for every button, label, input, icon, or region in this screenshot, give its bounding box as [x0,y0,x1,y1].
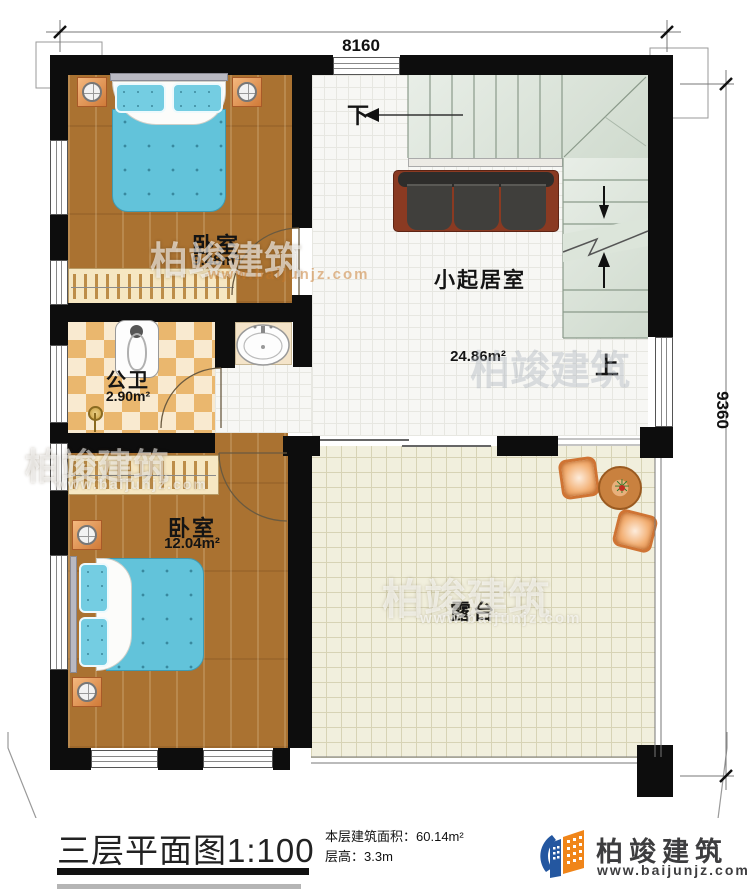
floor-area-label: 本层建筑面积： [325,829,416,844]
window [655,337,673,427]
bed-headboard [110,73,228,81]
wall-bathroom-east [215,322,235,368]
bed-bedroom1 [110,73,228,212]
stair-half-wall [408,158,563,167]
terrace-chair [557,456,600,501]
pillow [79,617,109,667]
floor-drain [88,406,103,421]
window [50,345,68,423]
terrace-label: 露台 [428,596,518,626]
wall-right [648,55,673,337]
stairs-down-label: 下 [344,98,374,130]
plant-flower [619,485,625,491]
floor-height-label: 层高： [325,849,364,864]
window [50,443,68,491]
floor-plan-page: ✳ [0,0,750,892]
pillow [79,563,109,613]
wall-bottom [50,748,91,770]
floor-height-value: 3.3m [364,849,393,864]
window [50,140,68,215]
lamp-icon [77,525,97,545]
title-underline-gray [57,884,301,889]
title-block: 三层平面图1:100 本层建筑面积：60.14m² 层高：3.3m 柏竣建筑 [0,818,750,892]
bedroom1-area: 9.48m² [166,252,266,269]
sofa [393,170,559,232]
bathroom-area: 2.90m² [78,388,178,404]
sink-counter [235,322,292,365]
wall-top-left [60,55,333,75]
wall-bedroom2-east [288,436,312,748]
plan-scale: 1:100 [227,832,315,869]
wall-bottom [158,748,203,770]
dimension-width: 8160 [330,36,392,56]
sofa-cushion [407,184,452,230]
stair-lower-flight [563,158,648,338]
plan-title: 三层平面图1:100 [57,824,315,872]
bed-headboard [70,556,77,673]
lamp-icon [237,82,257,102]
window [50,260,68,305]
wardrobe-rail [71,287,234,288]
wall-terrace-ne-pier [640,438,673,458]
wall-hall-south [50,433,215,453]
pillow [172,83,223,113]
wall-terrace-se-pier [637,745,673,797]
wardrobe-rail [71,475,216,476]
wall-bathroom-north [50,303,312,322]
brand-website: www.baijunjz.com [597,862,750,878]
hallway-floor [215,365,312,433]
dimension-height: 9360 [712,378,732,442]
title-underline [57,868,309,875]
wall-bedroom1-east [292,75,312,228]
lamp-icon [77,682,97,702]
stair-upper-flight [408,75,648,158]
wall-left [50,55,68,140]
brand-logo-icon [536,826,590,882]
wall-living-south [497,436,558,456]
window [203,750,273,768]
wall-sink-east [293,322,312,367]
lamp-icon [82,82,102,102]
nightstand [72,677,102,707]
sofa-cushion [454,184,499,230]
wardrobe-bedroom1 [68,268,237,305]
nightstand [77,77,107,107]
living-room-label: 小起居室 [390,264,570,294]
nightstand [232,77,262,107]
window [50,555,68,670]
floor-height-line: 层高：3.3m [325,846,393,865]
stairs-up-label: 上 [592,346,624,381]
nightstand [72,520,102,550]
floor-area-value: 60.14m² [416,829,464,844]
wall-top-right [400,55,673,75]
terrace-table: ✳ [598,466,642,510]
wardrobe-bedroom2 [68,455,219,495]
pillow [115,83,166,113]
window [91,750,158,768]
wall-left [50,215,68,260]
sofa-cushion [501,184,546,230]
living-room-area: 24.86m² [398,348,558,365]
wall-left [50,491,68,555]
window [333,57,400,75]
plan-title-text: 三层平面图 [57,832,227,869]
bedroom2-area: 12.04m² [132,535,252,552]
floor-area-line: 本层建筑面积：60.14m² [325,826,464,845]
bed-bedroom2 [70,556,204,673]
wall-bottom [273,748,290,770]
